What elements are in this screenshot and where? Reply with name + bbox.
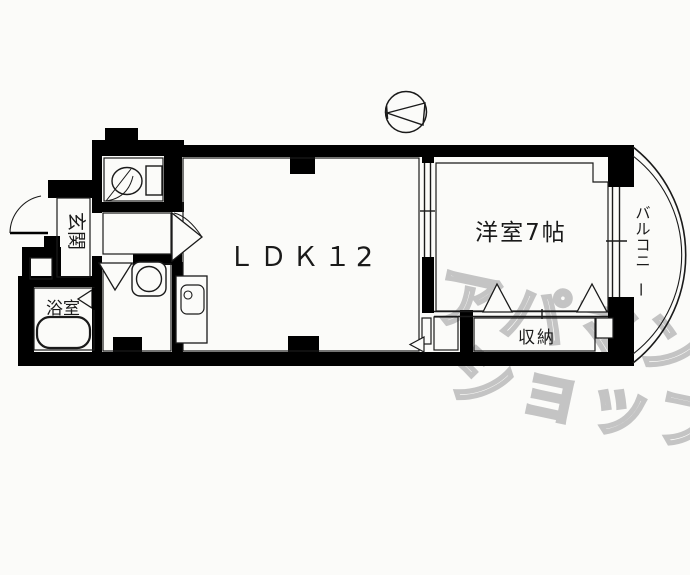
pillar-top-right xyxy=(608,148,634,187)
wall-entrance-top xyxy=(48,180,95,198)
label-bath: 浴室 xyxy=(46,299,80,319)
wall-partition-mid xyxy=(422,257,434,313)
wall-partition-top xyxy=(422,150,434,163)
wall-hall-right xyxy=(92,197,102,213)
outline-closet-notch xyxy=(596,318,613,338)
label-closet: 収納 xyxy=(518,328,556,348)
compass-apex-tick xyxy=(387,106,388,119)
wall-bath-left xyxy=(18,283,34,363)
label-ldk: ＬＤＫ１2 xyxy=(228,242,378,273)
kitchen-faucet-icon xyxy=(184,291,192,299)
floor-plan-drawing: アパマン ショップ xyxy=(0,0,690,575)
toilet-tank-icon xyxy=(146,166,162,195)
kitchen-sink-icon xyxy=(181,285,204,314)
bathtub-icon xyxy=(37,317,90,348)
label-bedroom: 洋室7帖 xyxy=(475,220,567,246)
wash-basin-bowl-icon xyxy=(137,267,162,292)
wall-bottom xyxy=(18,352,634,366)
floor-plan-page: アパマン ショップ xyxy=(0,0,690,575)
label-entrance: 玄関 xyxy=(65,212,87,250)
wall-top-main xyxy=(172,145,634,157)
pillar-top-ldk xyxy=(290,157,315,174)
bath-door-jamb xyxy=(92,288,99,310)
wall-toilet-bottom xyxy=(92,202,184,212)
